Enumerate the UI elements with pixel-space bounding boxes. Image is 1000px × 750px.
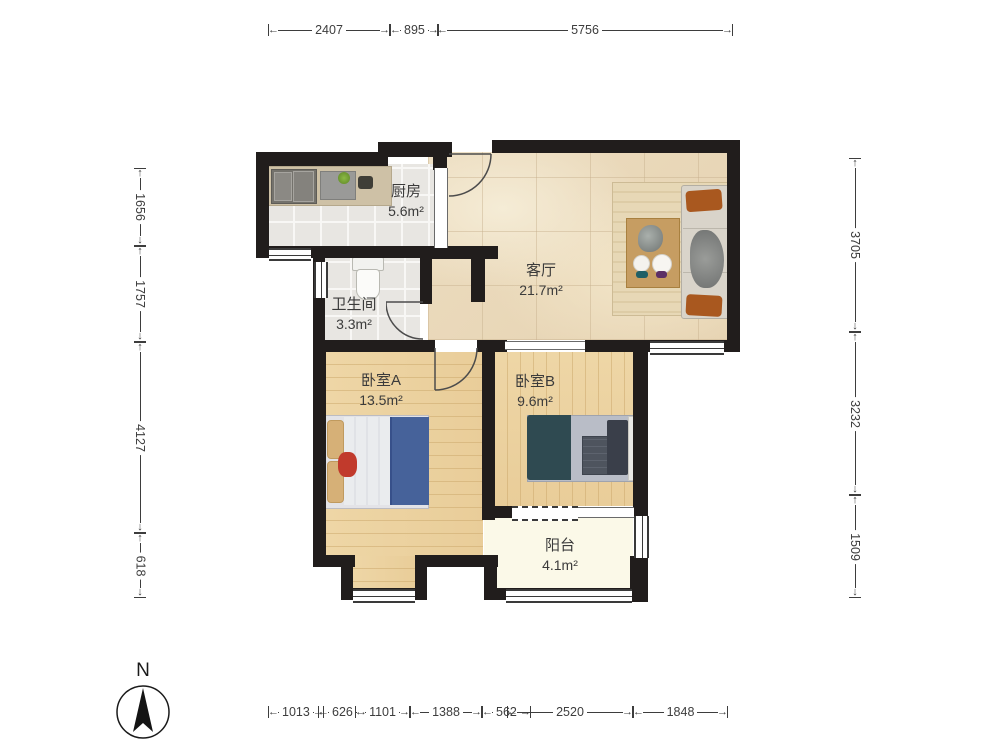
room-area: 13.5m² [333,391,429,409]
sofa-throw [690,230,724,288]
north-label: N [112,660,174,682]
wall-segment [477,340,507,352]
sliding-door-balcony [512,506,578,521]
wall-segment [471,252,485,302]
label-kitchen: 厨房 5.6m² [358,182,454,220]
kitchen-sink-basin [274,172,292,201]
label-bedroom-a: 卧室A 13.5m² [333,371,429,409]
dimension-value: 1757 [133,277,147,311]
room-area: 21.7m² [493,281,589,299]
dimension-value: 618 [133,552,147,579]
dimension-value: 1013 [279,705,313,719]
dimension-value: 3705 [848,228,862,262]
bed-a-blanket [390,417,429,505]
room-name: 卧室B [487,372,583,392]
room-name: 卧室A [333,371,429,391]
wall-segment [585,340,648,352]
wall-segment [727,140,740,352]
opening-bedroom-b [505,341,585,350]
table-item-teal [636,271,648,278]
dimension-bottom-1: ←1013→ [268,704,318,720]
window-bathroom-west [314,262,328,298]
wall-segment [433,150,447,170]
dimension-value: 5756 [568,23,602,37]
dimension-value: 895 [401,23,428,37]
entry-door-arc [449,153,494,198]
wall-segment [633,340,648,518]
window-bedroom-b-south [578,507,634,518]
dimension-value: 2407 [312,23,346,37]
bed-a-doll [338,452,357,477]
sofa-pillow-top [685,189,722,212]
wall-segment [313,340,326,567]
kitchen-plant [338,172,350,184]
compass-icon [112,682,174,742]
dimension-left-3: ↑4127↓ [132,342,148,533]
label-balcony: 阳台 4.1m² [512,536,608,574]
dimension-left-2: ↑1757↓ [132,246,148,342]
table-plant [638,225,663,252]
room-area: 9.6m² [487,392,583,410]
window-balcony-east [634,516,649,558]
bed-b-pillow [607,420,628,475]
dimension-value: 1656 [133,190,147,224]
room-area: 5.6m² [358,202,454,220]
dimension-right-2: ↑3232↓ [847,332,863,495]
dimension-top-1: ←2407→ [268,22,390,38]
window-living-south [650,341,724,355]
bed-b-plaid-bag [582,436,610,475]
room-name: 厨房 [358,182,454,202]
label-living-room: 客厅 21.7m² [493,261,589,299]
label-bathroom: 卫生间 3.3m² [306,295,402,333]
room-name: 阳台 [512,536,608,556]
dimension-value: 3232 [848,397,862,431]
dimension-value: 4127 [133,421,147,455]
sofa-seat-line1 [683,228,727,229]
wall-segment [482,340,495,520]
dimension-left-1: ↑1656↓ [132,168,148,246]
table-plate [633,255,650,272]
bedroom-a-door-arc [434,348,478,392]
dimension-bottom-6: ←2520→ [507,704,633,720]
dimension-value: 2520 [553,705,587,719]
dimension-bottom-3: ←1101→ [355,704,410,720]
dimension-value: 1388 [429,705,463,719]
dimension-bottom-7: ←1848→ [633,704,728,720]
window-kitchen-west [269,248,311,261]
dimension-top-2: ←895→ [390,22,437,38]
room-area: 4.1m² [512,556,608,574]
dimension-bottom-5: ←562→ [482,704,507,720]
table-item-purple [656,271,667,278]
wall-segment [256,152,388,166]
wall-segment [492,140,740,153]
dimension-right-1: ↑3705↓ [847,158,863,332]
bed-b-duvet [527,415,571,480]
room-name: 卫生间 [306,295,402,315]
wall-segment [313,246,435,258]
dimension-right-3: ↑1509↓ [847,495,863,598]
room-name: 客厅 [493,261,589,281]
floorplan-canvas: 厨房 5.6m² 客厅 21.7m² 卫生间 3.3m² 卧室A 13.5m² … [0,0,1000,750]
dimension-top-3: ←5756→ [437,22,733,38]
label-bedroom-b: 卧室B 9.6m² [487,372,583,410]
window-bedroom-a-bay [353,589,415,603]
wall-segment [420,252,432,304]
sofa-pillow-bottom [685,294,722,317]
north-compass: N [112,660,174,747]
dimension-bottom-2: ←626→ [318,704,355,720]
dimension-value: 1509 [848,530,862,564]
bedroom-a-bay-floor [353,556,415,590]
wall-segment [256,152,269,258]
wall-segment [630,556,648,602]
dimension-value: 1848 [664,705,698,719]
kitchen-sink-basin2 [293,171,314,202]
window-balcony-south [506,589,632,603]
dimension-left-4: ↑618↓ [132,533,148,598]
room-area: 3.3m² [306,315,402,333]
dimension-bottom-4: ←1388→ [410,704,482,720]
dimension-value: 1101 [366,705,399,719]
dimension-value: 626 [329,705,356,719]
